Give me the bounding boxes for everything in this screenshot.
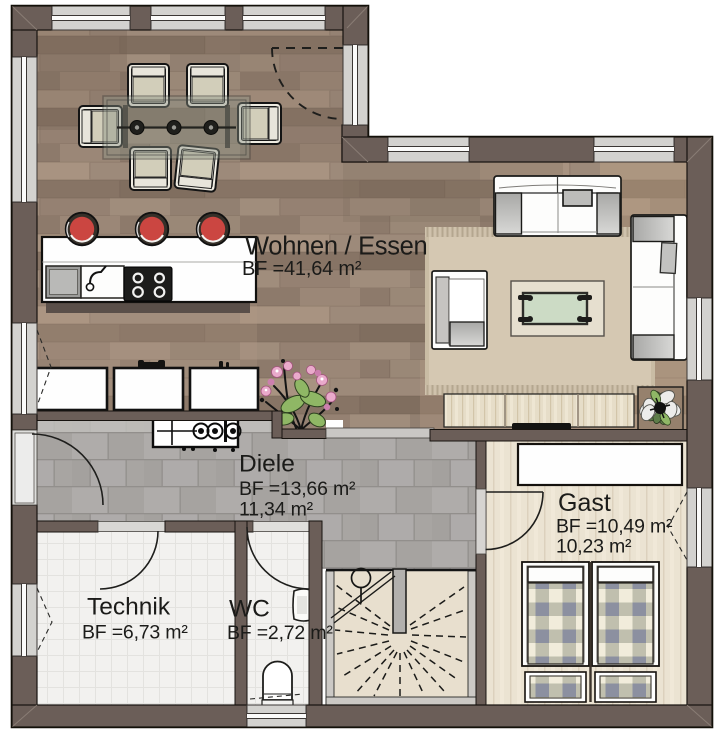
svg-text:BF =6,73 m²: BF =6,73 m² (82, 622, 188, 644)
svg-text:BF =10,49 m²: BF =10,49 m² (556, 516, 673, 538)
svg-text:WC: WC (229, 596, 270, 623)
svg-text:11,34 m²: 11,34 m² (239, 499, 314, 521)
svg-text:Technik: Technik (87, 594, 171, 621)
svg-text:BF =13,66 m²: BF =13,66 m² (239, 478, 356, 500)
svg-text:10,23 m²: 10,23 m² (556, 536, 632, 558)
svg-text:BF =41,64 m²: BF =41,64 m² (242, 258, 362, 280)
svg-text:Diele: Diele (239, 451, 295, 478)
svg-text:Wohnen / Essen: Wohnen / Essen (245, 233, 427, 261)
svg-text:Gast: Gast (558, 489, 611, 517)
svg-text:BF =2,72 m²: BF =2,72 m² (227, 622, 333, 644)
